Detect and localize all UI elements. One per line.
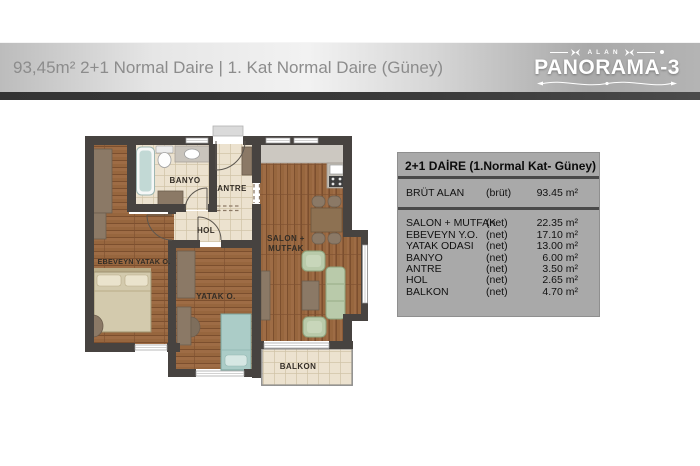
row-name: BRÜT ALAN xyxy=(406,188,486,199)
room-label-banyo: BANYO xyxy=(170,176,201,185)
area-info-table: 2+1 DAİRE (1.Normal Kat- Güney) BRÜT ALA… xyxy=(397,152,600,317)
stove-icon xyxy=(329,176,344,187)
row-value: 4.70 m² xyxy=(536,287,578,298)
bedroom-desk xyxy=(177,307,191,345)
room-label-salon-2: MUTFAK xyxy=(268,244,304,253)
row-basis: (net) xyxy=(486,241,536,252)
page: 93,45m² 2+1 Normal Daire | 1. Kat Normal… xyxy=(0,0,700,466)
room-label-balkon: BALKON xyxy=(280,362,317,371)
room-label-yatak: YATAK O. xyxy=(196,292,236,301)
bathroom-sink-icon xyxy=(175,146,209,162)
tv-unit xyxy=(261,271,270,320)
table-row-gross: BRÜT ALAN (brüt) 93.45 m² xyxy=(398,179,599,207)
master-wardrobe xyxy=(93,149,112,213)
bedroom-wardrobe xyxy=(177,251,195,298)
master-wardrobe-2 xyxy=(93,213,106,239)
room-label-ebeveyn: EBEVEYN YATAK O. xyxy=(97,257,170,266)
row-basis: (brüt) xyxy=(486,188,536,199)
room-label-antre: ANTRE xyxy=(217,184,247,193)
row-value: 13.00 m² xyxy=(536,241,578,252)
coffee-table xyxy=(302,281,319,310)
table-row: BALKON (net) 4.70 m² xyxy=(398,287,599,298)
bathtub-icon xyxy=(137,147,155,195)
row-name: BALKON xyxy=(406,287,486,298)
row-name: YATAK ODASI xyxy=(406,241,486,252)
entrance-landing xyxy=(213,126,243,136)
room-label-salon-1: SALON + xyxy=(267,234,305,243)
table-row: YATAK ODASI (net) 13.00 m² xyxy=(398,241,599,252)
room-label-hol: HOL xyxy=(197,226,215,235)
row-basis: (net) xyxy=(486,287,536,298)
table-title: 2+1 DAİRE (1.Normal Kat- Güney) xyxy=(398,153,599,176)
single-bed xyxy=(221,314,251,370)
table-net-rows: SALON + MUTFAK (net) 22.35 m² EBEVEYN Y.… xyxy=(398,210,599,298)
row-value: 93.45 m² xyxy=(536,188,578,199)
